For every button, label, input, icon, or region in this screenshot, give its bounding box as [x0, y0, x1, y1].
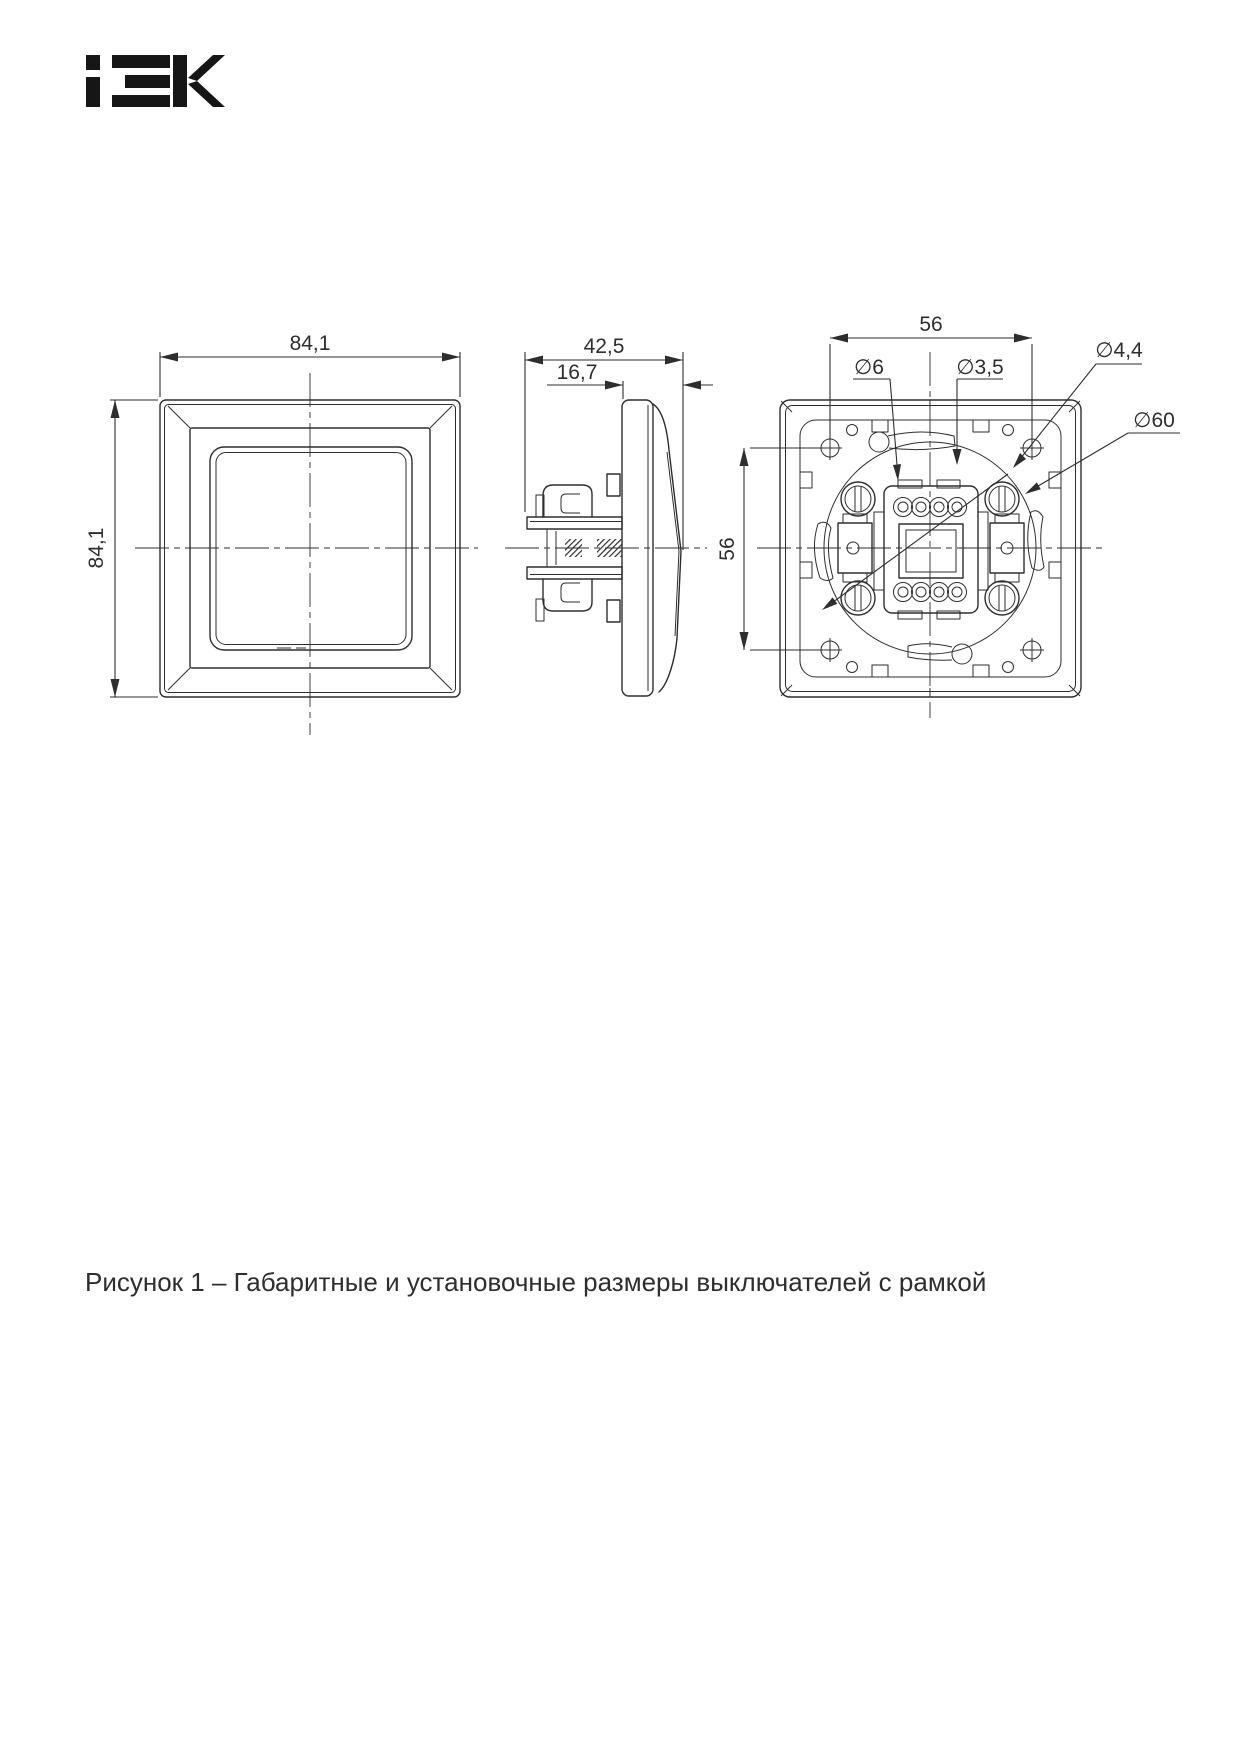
side-protruding-depth-dimension: 16,7	[547, 361, 713, 399]
dia6-label: ∅6	[854, 356, 884, 379]
front-view: 84,1 84,1	[85, 332, 478, 735]
front-height-label: 84,1	[85, 528, 108, 569]
back-vspacing-dimension: 56	[716, 448, 823, 650]
side-screw-head	[565, 539, 582, 557]
back-vspacing-label: 56	[716, 537, 739, 560]
side-total-depth-label: 42,5	[584, 335, 625, 358]
leader-dia3-5: ∅3,5	[953, 356, 1004, 465]
leader-dia4-4: ∅4,4	[822, 339, 1143, 610]
leader-dia6: ∅6	[853, 356, 901, 481]
leader-dia60: ∅60	[1025, 409, 1180, 494]
figure-caption: Рисунок 1 – Габаритные и установочные ра…	[85, 1266, 986, 1298]
back-view: 56 56 ∅6 ∅3,5	[716, 313, 1180, 718]
side-view: 42,5 16,7	[505, 335, 713, 696]
front-width-label: 84,1	[290, 332, 331, 355]
side-screw-head	[597, 539, 622, 557]
front-height-dimension: 84,1	[85, 400, 158, 697]
dia60-label: ∅60	[1133, 409, 1175, 432]
document-page: 84,1 84,1 42,5	[0, 0, 1243, 1748]
dimensional-drawing: 84,1 84,1 42,5	[0, 0, 1243, 1748]
dia3-5-label: ∅3,5	[956, 356, 1004, 379]
side-protruding-depth-label: 16,7	[557, 361, 598, 384]
back-hspacing-label: 56	[919, 313, 942, 336]
corner-fixing-holes	[818, 436, 1044, 662]
side-total-depth-dimension: 42,5	[525, 335, 683, 550]
dia4-4-label: ∅4,4	[1095, 339, 1143, 362]
